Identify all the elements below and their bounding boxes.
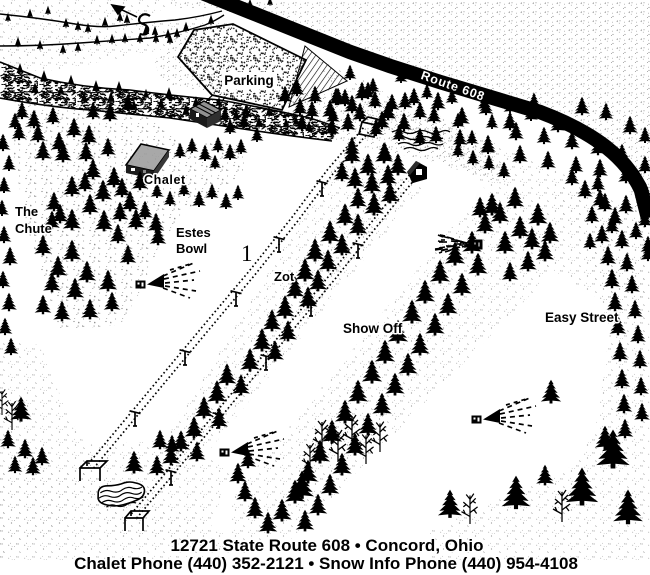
svg-text:The: The — [15, 204, 38, 219]
svg-text:Zot: Zot — [274, 269, 295, 284]
svg-text:Easy Street: Easy Street — [545, 310, 619, 325]
svg-text:Bowl: Bowl — [176, 241, 207, 256]
svg-text:Chute: Chute — [15, 221, 52, 236]
svg-text:Parking: Parking — [224, 73, 274, 88]
svg-text:Chalet Phone (440) 352-2121 •: Chalet Phone (440) 352-2121 • Snow Info … — [74, 554, 578, 573]
svg-text:Chalet: Chalet — [144, 173, 186, 187]
svg-text:Estes: Estes — [176, 225, 211, 240]
svg-text:1: 1 — [241, 241, 253, 266]
svg-text:12721 State Route 608 • Concor: 12721 State Route 608 • Concord, Ohio — [171, 536, 484, 555]
svg-text:Show Off: Show Off — [343, 321, 403, 336]
